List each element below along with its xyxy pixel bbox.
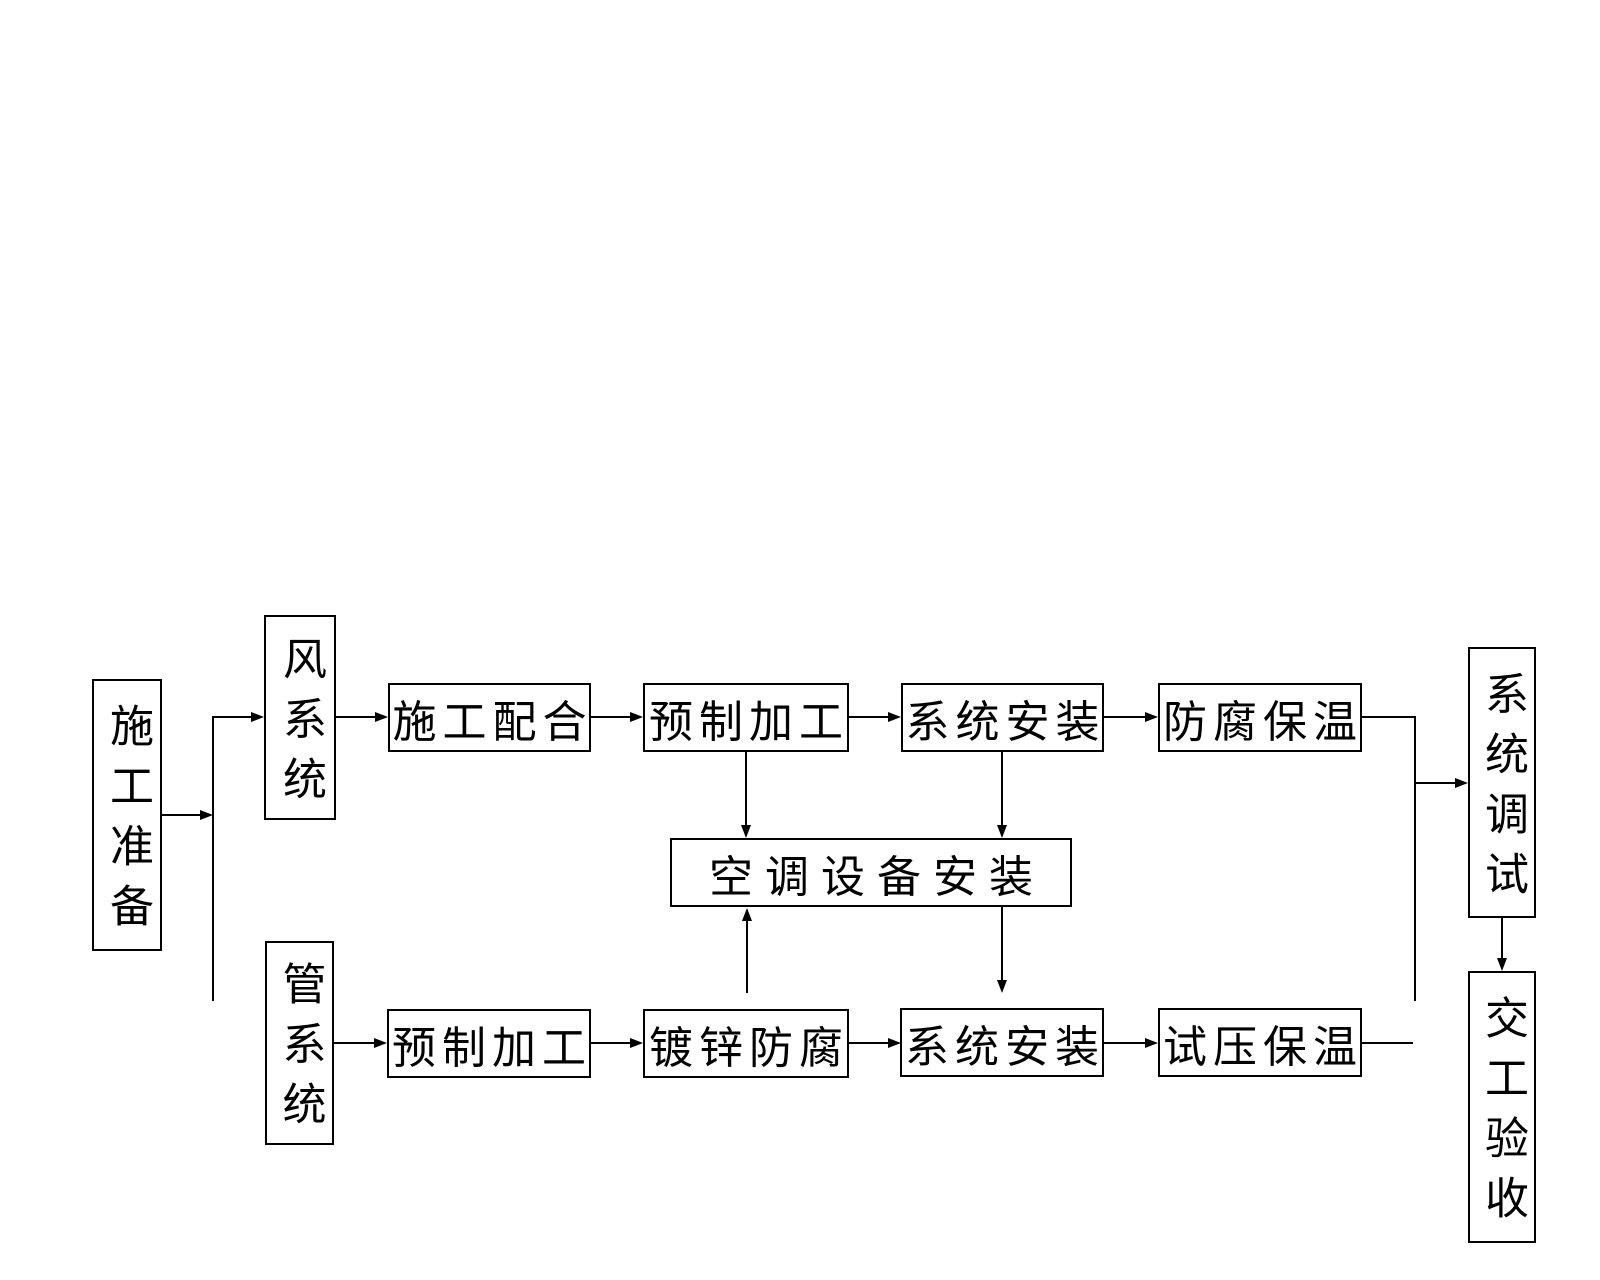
node-air-system-label: 风系统: [268, 636, 332, 816]
node-prefabrication-air-label: 预制加工: [649, 686, 849, 750]
connector-coordination-to-prefab-air: [591, 716, 630, 718]
node-pipe-system-label: 管系统: [268, 961, 332, 1141]
arrowhead-air-system-to-coordination: [375, 712, 388, 722]
arrowhead-ac-equipment-to-install-pipe: [997, 980, 1007, 993]
connector-commissioning-to-acceptance: [1501, 918, 1503, 958]
connector-install-pipe-to-pressure: [1104, 1042, 1145, 1044]
arrowhead-install-air-to-ac-equipment: [997, 825, 1007, 838]
node-ac-equipment-install: 空调设备安装: [670, 838, 1072, 907]
node-system-commissioning-label: 系统调试: [1470, 671, 1534, 911]
node-handover-acceptance-label: 交工验收: [1470, 995, 1534, 1235]
arrowhead-merge-to-commissioning: [1455, 778, 1468, 788]
arrowhead-pipe-system-to-prefab-pipe: [374, 1038, 387, 1048]
node-pipe-system: 管系统: [265, 941, 334, 1145]
connector-merge-to-commissioning: [1416, 782, 1455, 784]
node-pressure-test-insulation-label: 试压保温: [1163, 1011, 1363, 1075]
connector-pipe-system-to-prefab-pipe: [334, 1042, 374, 1044]
node-system-install-pipe: 系统安装: [900, 1008, 1104, 1077]
node-anticorrosion-insulation: 防腐保温: [1158, 683, 1362, 752]
node-ac-equipment-install-label: 空调设备安装: [709, 841, 1045, 905]
node-prefabrication-air: 预制加工: [643, 683, 849, 752]
node-air-system: 风系统: [264, 615, 336, 820]
node-construction-prep: 施工准备: [92, 679, 162, 951]
connector-galvanize-to-ac-equipment: [746, 920, 748, 993]
node-system-install-pipe-label: 系统安装: [905, 1011, 1105, 1075]
arrowhead-prefab-pipe-to-galvanize: [630, 1038, 643, 1048]
node-system-commissioning: 系统调试: [1468, 647, 1536, 918]
flowchart-canvas: 施工准备 风系统 管系统 施工配合 预制加工 系统安装 防腐保温 空调设备安装 …: [0, 0, 1600, 1280]
node-pressure-test-insulation: 试压保温: [1158, 1008, 1362, 1077]
node-galvanize-anticorrosion-label: 镀锌防腐: [649, 1012, 849, 1076]
node-construction-coordination-label: 施工配合: [393, 686, 593, 750]
arrowhead-commissioning-to-acceptance: [1497, 958, 1507, 971]
connector-prefab-pipe-to-galvanize: [591, 1042, 630, 1044]
connector-install-air-to-anticorrosion: [1104, 716, 1145, 718]
connector-galvanize-to-install-pipe: [849, 1042, 888, 1044]
node-construction-prep-label: 施工准备: [95, 703, 159, 943]
arrowhead-prefab-air-to-ac-equipment: [741, 825, 751, 838]
connector-merge-vertical: [1414, 716, 1416, 1001]
connector-branch-to-air-system: [212, 716, 251, 718]
arrowhead-install-pipe-to-pressure: [1145, 1038, 1158, 1048]
node-anticorrosion-insulation-label: 防腐保温: [1163, 686, 1363, 750]
arrowhead-galvanize-to-install-pipe: [888, 1038, 901, 1048]
node-system-install-air-label: 系统安装: [906, 686, 1106, 750]
arrowhead-coordination-to-prefab-air: [630, 712, 643, 722]
connector-ac-equipment-to-install-pipe: [1001, 907, 1003, 980]
connector-branch-vertical: [212, 716, 214, 1001]
connector-prefab-air-to-install-air: [849, 716, 888, 718]
arrowhead-install-air-to-anticorrosion: [1145, 712, 1158, 722]
connector-prefab-air-to-ac-equipment: [745, 752, 747, 825]
connector-anticorrosion-to-merge: [1362, 716, 1416, 718]
node-prefabrication-pipe-label: 预制加工: [392, 1012, 592, 1076]
node-galvanize-anticorrosion: 镀锌防腐: [643, 1009, 849, 1078]
connector-air-system-to-coordination: [336, 716, 375, 718]
connector-prep-to-branch: [162, 814, 200, 816]
arrowhead-branch-to-air-system: [251, 712, 264, 722]
node-prefabrication-pipe: 预制加工: [387, 1009, 591, 1078]
node-system-install-air: 系统安装: [901, 683, 1104, 752]
node-construction-coordination: 施工配合: [388, 683, 591, 752]
connector-pressure-to-merge: [1362, 1042, 1413, 1044]
arrowhead-prefab-air-to-install-air: [888, 712, 901, 722]
connector-install-air-to-ac-equipment: [1001, 752, 1003, 825]
node-handover-acceptance: 交工验收: [1468, 971, 1536, 1243]
